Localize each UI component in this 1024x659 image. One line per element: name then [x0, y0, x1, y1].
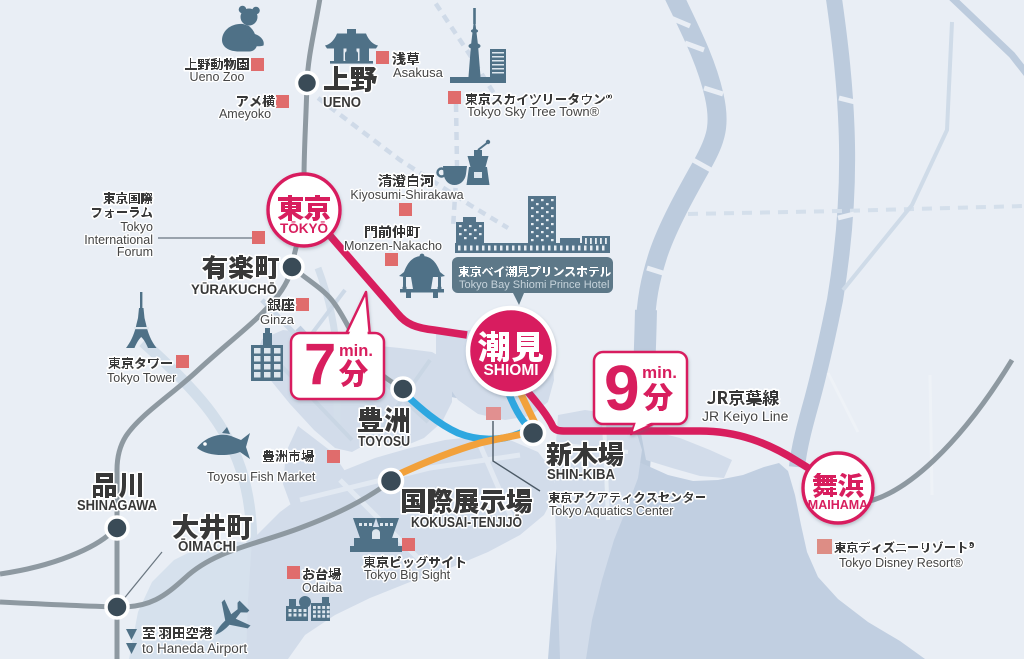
svg-text:Asakusa: Asakusa	[393, 65, 444, 80]
svg-text:7: 7	[304, 332, 336, 397]
svg-text:Kiyosumi-Shirakawa: Kiyosumi-Shirakawa	[350, 188, 463, 202]
svg-text:Tokyo Sky Tree Town®: Tokyo Sky Tree Town®	[467, 104, 600, 119]
svg-text:to Haneda Airport: to Haneda Airport	[142, 641, 247, 656]
svg-text:Ueno Zoo: Ueno Zoo	[190, 70, 245, 84]
svg-text:Odaiba: Odaiba	[302, 581, 342, 595]
svg-text:ŌIMACHI: ŌIMACHI	[178, 537, 236, 555]
svg-text:Forum: Forum	[117, 245, 153, 259]
svg-text:SHIN-KIBA: SHIN-KIBA	[547, 466, 615, 483]
svg-text:UENO: UENO	[323, 94, 361, 111]
svg-text:MAIHAMA: MAIHAMA	[808, 498, 868, 512]
svg-text:Tokyo Aquatics Center: Tokyo Aquatics Center	[549, 504, 673, 518]
svg-text:Ameyoko: Ameyoko	[219, 107, 271, 121]
svg-text:TŌKYŌ: TŌKYŌ	[280, 221, 328, 236]
svg-text:Tokyo Big Sight: Tokyo Big Sight	[364, 568, 451, 582]
svg-text:SHIOMI: SHIOMI	[483, 362, 538, 379]
svg-text:min.: min.	[642, 363, 677, 382]
svg-text:9: 9	[604, 352, 640, 424]
svg-text:Monzen-Nakacho: Monzen-Nakacho	[344, 239, 442, 253]
svg-text:Tokyo Disney Resort®: Tokyo Disney Resort®	[839, 556, 964, 570]
svg-text:YŪRAKUCHŌ: YŪRAKUCHŌ	[191, 282, 277, 297]
svg-text:JR Keiyo Line: JR Keiyo Line	[702, 408, 789, 424]
svg-text:Toyosu Fish Market: Toyosu Fish Market	[207, 470, 316, 484]
svg-text:SHINAGAWA: SHINAGAWA	[77, 498, 157, 514]
svg-text:KOKUSAI-TENJIJŌ: KOKUSAI-TENJIJŌ	[411, 514, 522, 531]
svg-text:Tokyo Tower: Tokyo Tower	[107, 371, 176, 385]
svg-text:TOYOSU: TOYOSU	[358, 434, 410, 450]
svg-text:Tokyo Bay Shiomi Prince Hotel: Tokyo Bay Shiomi Prince Hotel	[459, 279, 609, 291]
svg-text:min.: min.	[339, 342, 373, 360]
svg-text:Tokyo: Tokyo	[120, 220, 153, 234]
svg-text:Ginza: Ginza	[260, 312, 295, 327]
